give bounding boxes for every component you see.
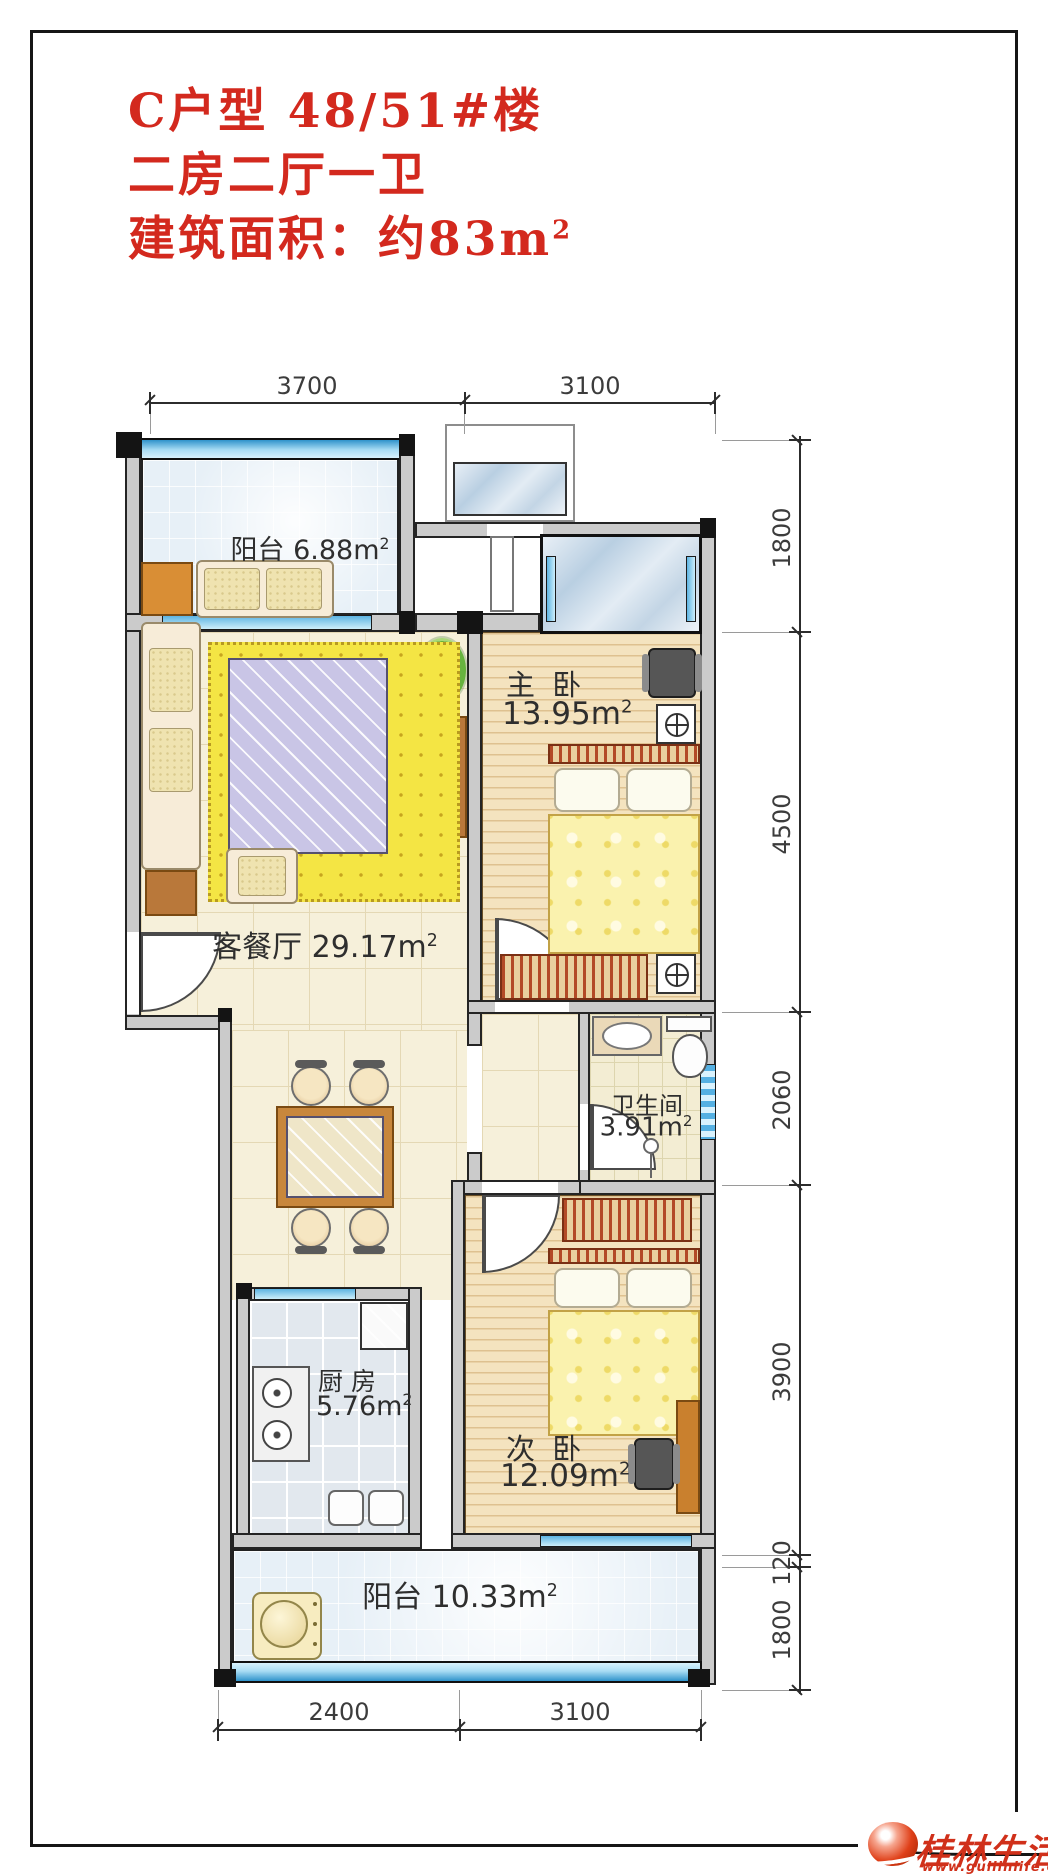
master-bed-headboard [548, 744, 700, 764]
coffee-table [228, 658, 388, 854]
corner-post-balcony-br-junction [399, 611, 415, 634]
kitchen-area-value: 5.76m [316, 1391, 402, 1422]
dining-table-glass [286, 1116, 384, 1198]
dim-label-top-1: 3700 [247, 372, 367, 400]
entry-door-opening [487, 524, 543, 536]
master-bay-window [540, 534, 702, 634]
dim-tick [714, 392, 716, 414]
dim-ext-right-4 [722, 1185, 794, 1186]
dining-chair-3 [291, 1208, 331, 1248]
master-chair [648, 648, 696, 698]
dim-tick [789, 1011, 811, 1013]
dim-label-right-6: 1800 [768, 1570, 796, 1690]
master-door-opening [495, 1002, 569, 1012]
hallway-floor [482, 1014, 578, 1180]
second-bedroom-area-value: 12.09m [500, 1458, 619, 1494]
bedroom2-chair [634, 1438, 674, 1490]
balcony-bottom-sup: 2 [547, 1581, 558, 1601]
kitchen-area: 5.76m2 [316, 1390, 412, 1422]
side-table-2 [145, 870, 197, 916]
frame-bottom [30, 1844, 875, 1847]
entry-door-leaf [490, 536, 514, 612]
bathroom-area: 3.91m2 [586, 1112, 706, 1143]
dining-chair-1 [291, 1066, 331, 1106]
kitchen-sink-basin-1 [328, 1490, 364, 1526]
nightstand-lamp-icon-2 [656, 954, 696, 994]
dim-ext-right-7 [722, 1690, 794, 1691]
dim-label-right-4: 3900 [768, 1312, 796, 1432]
unit-entry-opening [127, 932, 139, 1014]
wall-left-lower [218, 1015, 232, 1685]
plan-title-line3-text: 建筑面积：约83m [128, 212, 552, 267]
second-bedroom-area-sup: 2 [619, 1459, 630, 1480]
corner-post-foyer [457, 611, 483, 634]
wall-bathroom-bottom [578, 1180, 716, 1195]
balcony-bottom-label: 阳台 10.33m2 [320, 1572, 600, 1616]
wall-left-jog [125, 1015, 232, 1030]
balcony-top-label: 阳台 6.88m2 [205, 528, 415, 567]
dim-tick [789, 439, 811, 441]
corner-post-kitchen-tl [236, 1283, 252, 1299]
frame-top [30, 30, 1018, 33]
wall-hall-stub-top [467, 1012, 482, 1046]
dim-line-right [799, 436, 801, 1694]
stove-burner-2 [262, 1420, 292, 1450]
master-bedroom-area-sup: 2 [621, 697, 632, 718]
living-dining-name: 客餐厅 [212, 930, 302, 965]
sofa-left-cushion-1 [149, 648, 193, 712]
wall-bedroom2-left [451, 1180, 465, 1540]
bedroom2-pillow-1 [554, 1268, 620, 1308]
entry-porch-window [453, 462, 567, 516]
dim-label-right-1: 1800 [768, 478, 796, 598]
plan-title-line2: 二房二厅一卫 [128, 136, 428, 205]
dim-label-bottom-1: 2400 [279, 1698, 399, 1726]
master-pillow-2 [626, 768, 692, 812]
bedroom2-balcony-window [540, 1535, 692, 1547]
plan-title-line3-sup: 2 [552, 215, 573, 245]
balcony-bottom-name: 阳台 [362, 1580, 422, 1615]
bathroom-area-value: 3.91m [600, 1113, 683, 1143]
dim-tick [464, 392, 466, 414]
corner-post-balcony2-br [688, 1669, 710, 1687]
master-wardrobe [500, 954, 648, 1000]
dim-tick [789, 1184, 811, 1186]
dim-tick [149, 392, 151, 414]
balcony-top-area: 6.88m [293, 535, 379, 566]
sofa-top-cushion-1 [204, 568, 260, 610]
dining-chair-2 [349, 1066, 389, 1106]
kitchen-counter [360, 1302, 408, 1350]
toilet-tank [666, 1016, 712, 1032]
corner-post-master-tr [700, 518, 716, 538]
frame-left [30, 30, 33, 1847]
dim-ext-right-3 [722, 1012, 794, 1013]
nightstand-lamp-icon-1 [656, 704, 696, 744]
sofa-top-cushion-2 [266, 568, 322, 610]
armchair-cushion [238, 856, 286, 896]
wall-kitchen-left [236, 1287, 250, 1549]
dim-tick [700, 1719, 702, 1741]
toilet-bowl-icon [672, 1034, 708, 1078]
dim-tick [217, 1719, 219, 1741]
corner-post-balcony2-bl [214, 1669, 236, 1687]
bedroom2-pillow-2 [626, 1268, 692, 1308]
master-bay-window-side-left [546, 556, 556, 622]
watermark-site-url: www.guilinlife.com [922, 1860, 1048, 1875]
shower-stem [650, 1154, 652, 1178]
bedroom2-wardrobe [562, 1198, 692, 1242]
master-bedroom-area-value: 13.95m [502, 696, 621, 732]
wall-living-master [467, 632, 482, 1012]
bathroom-sink-basin-icon [602, 1022, 652, 1050]
balcony-top-railing-window [125, 438, 415, 460]
dim-ext-right-2 [722, 632, 794, 633]
bedroom2-door-opening [482, 1182, 558, 1193]
kitchen-area-sup: 2 [402, 1390, 412, 1409]
bathroom-area-sup: 2 [683, 1112, 693, 1130]
bedroom2-bed-headboard [548, 1248, 700, 1264]
master-pillow-1 [554, 768, 620, 812]
living-dining-sup: 2 [427, 931, 438, 951]
dim-ext-right-1 [722, 440, 794, 441]
frame-right [1015, 30, 1018, 1847]
corner-side-table [141, 562, 193, 616]
sofa-left-cushion-2 [149, 728, 193, 792]
washing-machine-knob-3 [313, 1642, 317, 1646]
wall-balcony-bottom-left [232, 1533, 422, 1549]
master-bedroom-area: 13.95m2 [502, 696, 632, 732]
master-bed [548, 814, 700, 954]
balcony-bottom-area: 10.33m [432, 1580, 547, 1615]
plan-title-line3: 建筑面积：约83m2 [128, 200, 573, 269]
balcony-top-sup: 2 [380, 534, 390, 553]
floor-plan-page: C户型 48/51#楼 二房二厅一卫 建筑面积：约83m2 [0, 0, 1048, 1875]
plan-title-line1: C户型 48/51#楼 [128, 72, 543, 141]
dim-line-top [150, 402, 716, 404]
corner-post-balcony-tl [116, 432, 142, 458]
washing-machine-knob-2 [313, 1622, 317, 1626]
stove-burner-1 [262, 1378, 292, 1408]
dim-tick [789, 631, 811, 633]
kitchen-sink-basin-2 [368, 1490, 404, 1526]
washing-machine-knob-1 [313, 1602, 317, 1606]
living-dining-label: 客餐厅 29.17m2 [190, 922, 460, 966]
dim-label-bottom-2: 3100 [520, 1698, 640, 1726]
corner-post-left-jog [218, 1008, 232, 1022]
dim-label-right-3: 2060 [768, 1040, 796, 1160]
kitchen-window [254, 1288, 356, 1300]
dining-chair-4 [349, 1208, 389, 1248]
second-bedroom-area: 12.09m2 [500, 1458, 630, 1494]
dim-label-right-2: 4500 [768, 764, 796, 884]
balcony-bottom-railing-window [230, 1661, 702, 1683]
dim-label-top-2: 3100 [530, 372, 650, 400]
balcony-top-name: 阳台 [231, 535, 285, 566]
washing-machine-door [260, 1600, 308, 1648]
living-dining-area: 29.17m [312, 930, 427, 965]
corner-post-balcony-tr [399, 434, 415, 456]
master-bay-window-side-right [686, 556, 696, 622]
dim-tick [459, 1719, 461, 1741]
